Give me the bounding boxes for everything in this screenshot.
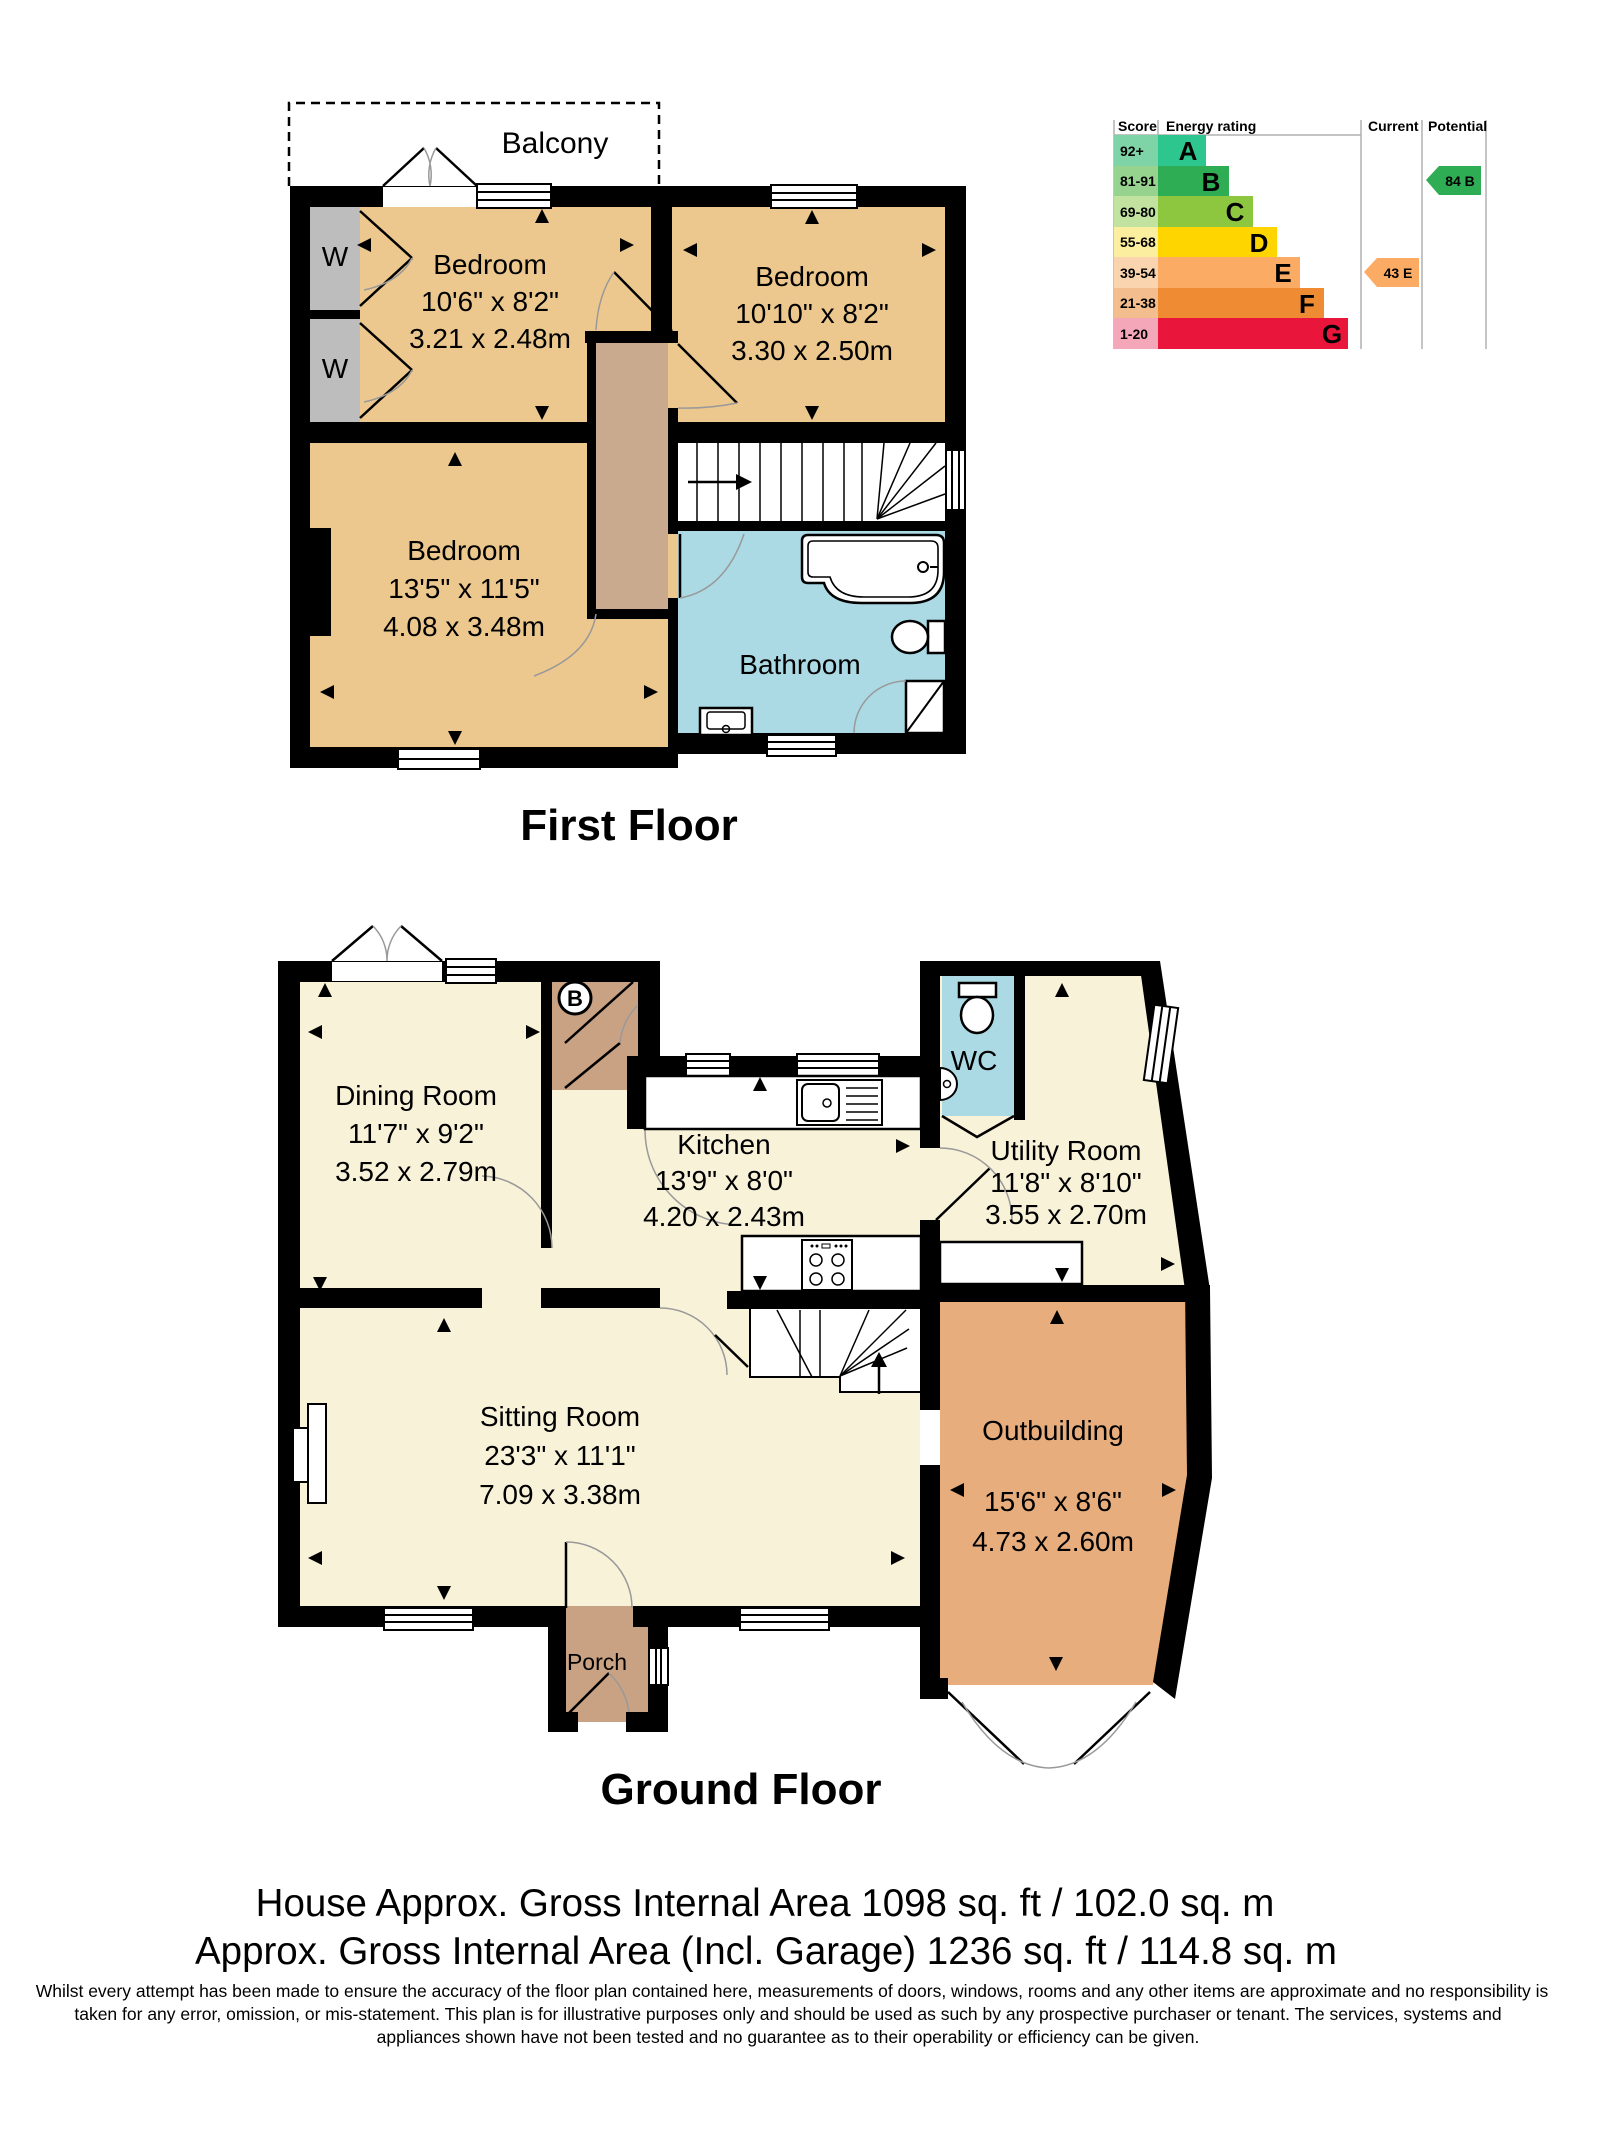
svg-text:taken for any error, omission,: taken for any error, omission, or mis-st…	[74, 2004, 1501, 2024]
svg-text:23'3" x 11'1": 23'3" x 11'1"	[484, 1440, 635, 1471]
svg-text:11'7" x 9'2": 11'7" x 9'2"	[348, 1118, 484, 1149]
svg-text:3.21 x 2.48m: 3.21 x 2.48m	[409, 323, 571, 354]
svg-text:Ground Floor: Ground Floor	[600, 1765, 881, 1814]
svg-text:92+: 92+	[1120, 143, 1144, 159]
svg-text:Porch: Porch	[567, 1649, 627, 1675]
svg-text:Bedroom: Bedroom	[407, 535, 521, 566]
svg-text:W: W	[322, 353, 349, 384]
svg-text:Utility Room: Utility Room	[991, 1135, 1142, 1166]
svg-text:Bathroom: Bathroom	[739, 649, 860, 680]
svg-text:10'10" x 8'2": 10'10" x 8'2"	[735, 298, 889, 329]
svg-text:Bedroom: Bedroom	[755, 261, 869, 292]
svg-text:81-91: 81-91	[1120, 173, 1156, 189]
svg-text:21-38: 21-38	[1120, 295, 1156, 311]
svg-text:House Approx. Gross Internal A: House Approx. Gross Internal Area 1098 s…	[256, 1882, 1275, 1925]
svg-text:D: D	[1250, 228, 1269, 258]
svg-text:Balcony: Balcony	[502, 127, 609, 160]
svg-text:Whilst every attempt has been: Whilst every attempt has been made to en…	[36, 1981, 1549, 2001]
svg-text:3.52 x 2.79m: 3.52 x 2.79m	[335, 1156, 497, 1187]
svg-text:3.30 x 2.50m: 3.30 x 2.50m	[731, 335, 893, 366]
svg-text:84 B: 84 B	[1445, 173, 1475, 189]
svg-text:WC: WC	[951, 1045, 998, 1076]
svg-text:13'9" x 8'0": 13'9" x 8'0"	[655, 1165, 793, 1196]
svg-text:Potential: Potential	[1428, 118, 1487, 134]
svg-text:55-68: 55-68	[1120, 234, 1156, 250]
svg-text:E: E	[1274, 258, 1291, 288]
svg-text:G: G	[1322, 319, 1342, 349]
svg-text:B: B	[567, 986, 583, 1011]
svg-text:15'6" x 8'6": 15'6" x 8'6"	[984, 1486, 1122, 1517]
svg-text:7.09 x 3.38m: 7.09 x 3.38m	[479, 1479, 641, 1510]
svg-text:B: B	[1202, 167, 1221, 197]
svg-text:First Floor: First Floor	[520, 801, 738, 850]
svg-text:4.20 x 2.43m: 4.20 x 2.43m	[643, 1201, 805, 1232]
svg-text:Approx. Gross Internal Area (I: Approx. Gross Internal Area (Incl. Garag…	[195, 1930, 1337, 1973]
svg-text:4.73 x 2.60m: 4.73 x 2.60m	[972, 1526, 1134, 1557]
svg-text:3.55 x 2.70m: 3.55 x 2.70m	[985, 1199, 1147, 1230]
svg-text:Sitting Room: Sitting Room	[480, 1401, 640, 1432]
svg-text:Dining Room: Dining Room	[335, 1080, 497, 1111]
svg-text:13'5" x 11'5": 13'5" x 11'5"	[388, 573, 539, 604]
svg-text:A: A	[1179, 136, 1198, 166]
svg-text:Score: Score	[1118, 118, 1157, 134]
svg-text:4.08 x 3.48m: 4.08 x 3.48m	[383, 611, 545, 642]
svg-text:43 E: 43 E	[1384, 265, 1413, 281]
svg-text:appliances shown have not been: appliances shown have not been tested an…	[377, 2027, 1200, 2047]
svg-text:Kitchen: Kitchen	[677, 1129, 770, 1160]
svg-text:39-54: 39-54	[1120, 265, 1156, 281]
svg-text:Outbuilding: Outbuilding	[982, 1415, 1124, 1446]
svg-text:Energy rating: Energy rating	[1166, 118, 1256, 134]
svg-text:69-80: 69-80	[1120, 204, 1156, 220]
svg-text:11'8" x 8'10": 11'8" x 8'10"	[990, 1167, 1141, 1198]
svg-text:1-20: 1-20	[1120, 326, 1148, 342]
svg-text:W: W	[322, 241, 349, 272]
svg-text:F: F	[1299, 289, 1315, 319]
svg-text:Bedroom: Bedroom	[433, 249, 547, 280]
svg-text:10'6" x 8'2": 10'6" x 8'2"	[421, 286, 559, 317]
svg-text:Current: Current	[1368, 118, 1419, 134]
svg-text:C: C	[1226, 197, 1245, 227]
